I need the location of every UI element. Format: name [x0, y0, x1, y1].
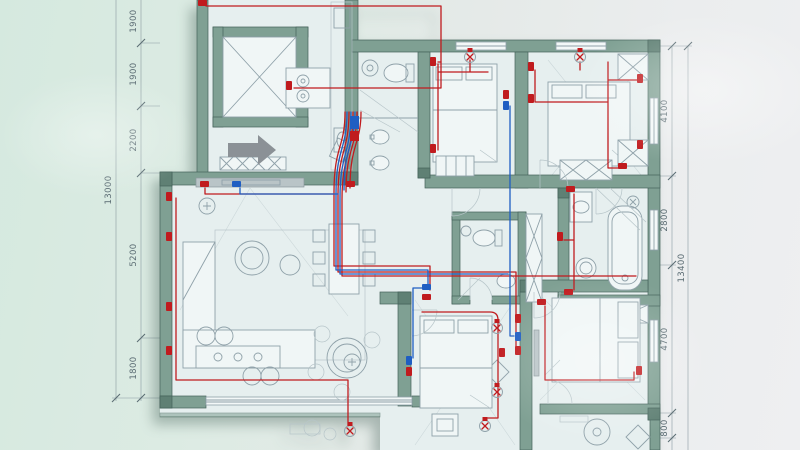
- wall-balcony-slab: [160, 413, 380, 417]
- dim-label-left-4: 1800: [129, 356, 139, 379]
- power-outlet-icon: [200, 181, 209, 187]
- balcony-left: [290, 420, 336, 440]
- dim-label-left-1: 1900: [129, 62, 139, 85]
- window-right-1: [650, 98, 658, 144]
- ceiling-light-icon: [345, 422, 356, 437]
- pier-2: [160, 396, 172, 408]
- entry: [220, 157, 286, 170]
- dim-label-right-1: 2800: [660, 208, 670, 231]
- power-outlet-icon: [166, 232, 172, 241]
- bedroom-top-middle: [433, 64, 497, 176]
- dim-label-left-3: 5200: [129, 243, 139, 266]
- wall-elevator-left: [213, 27, 223, 127]
- distribution-panel: [350, 116, 359, 141]
- pier-1: [160, 172, 172, 186]
- window-living-south: [206, 397, 412, 405]
- bench: [432, 414, 458, 436]
- island: [196, 346, 280, 368]
- power-outlet-icon: [637, 140, 643, 149]
- elevator: [223, 37, 296, 117]
- low-voltage-outlet-icon: [232, 181, 241, 187]
- power-outlet-icon: [430, 57, 436, 66]
- floor-plan: 1900 1900 2200 5200 1800 13000 4100 2800…: [0, 0, 800, 450]
- dim-label-left-overall: 13000: [104, 175, 114, 204]
- toilet: [473, 230, 495, 246]
- wall-living-left: [160, 172, 172, 408]
- low-voltage-outlet-icon: [515, 332, 521, 341]
- bathtub: [608, 206, 642, 290]
- wall-corridor-top: [425, 175, 660, 188]
- power-outlet-icon: [166, 302, 172, 311]
- power-outlet-icon: [166, 346, 172, 355]
- power-outlet-icon: [637, 74, 643, 83]
- dimension-chain-left: 1900 1900 2200 5200 1800 13000: [104, 0, 160, 402]
- dresser: [436, 156, 474, 176]
- power-outlet-icon: [286, 81, 292, 90]
- power-outlet-icon: [422, 294, 431, 300]
- power-outlet-icon: [537, 299, 546, 305]
- power-outlet-icon: [528, 94, 534, 103]
- wall-bedroom-bc-left: [398, 292, 411, 406]
- wall-bedroom-divider-top: [515, 52, 528, 188]
- apartment: [160, 0, 660, 450]
- toilet: [384, 64, 408, 82]
- power-outlet-icon: [346, 181, 355, 187]
- bedroom-bottom-right: [545, 298, 640, 382]
- low-voltage-outlet-icon: [422, 284, 431, 290]
- bed: [420, 316, 492, 408]
- wall-elevator-top: [213, 27, 308, 37]
- pier-5: [648, 408, 660, 420]
- floor-plan-canvas: 1900 1900 2200 5200 1800 13000 4100 2800…: [0, 0, 800, 450]
- bed: [552, 298, 640, 382]
- tv: [534, 330, 539, 376]
- pier-4: [648, 40, 660, 52]
- low-voltage-outlet-icon: [406, 356, 412, 365]
- wall-elevator-bottom: [213, 117, 308, 127]
- power-outlet-icon: [528, 62, 534, 71]
- wall-bath-center-top: [452, 212, 526, 220]
- dim-label-right-overall: 13400: [677, 253, 687, 282]
- power-outlet-icon: [198, 0, 207, 6]
- power-outlet-icon: [566, 186, 575, 192]
- power-outlet-icon: [515, 314, 521, 323]
- dim-label-left-0: 1900: [129, 9, 139, 32]
- wall-bath-top-right: [418, 52, 430, 178]
- power-outlet-icon: [636, 366, 642, 375]
- wall-bottom-divider: [520, 292, 532, 450]
- low-voltage-outlet-icon: [503, 101, 509, 110]
- power-outlet-icon: [430, 144, 436, 153]
- window-right-2: [650, 210, 658, 250]
- window-right-3: [650, 320, 658, 362]
- wall-entry-left: [197, 0, 208, 178]
- power-outlet-icon: [499, 348, 505, 357]
- tv-console: [196, 178, 304, 187]
- power-outlet-icon: [515, 346, 521, 355]
- dim-label-left-2: 2200: [129, 128, 139, 151]
- dim-label-right-0: 4100: [660, 99, 670, 122]
- bed: [433, 64, 497, 162]
- power-outlet-icon: [618, 163, 627, 169]
- dim-label-right-3: 800: [660, 419, 670, 436]
- pier-9: [418, 168, 430, 178]
- dim-label-right-2: 4700: [660, 327, 670, 350]
- pier-7: [398, 292, 411, 304]
- sink: [576, 258, 596, 278]
- window-top-1: [456, 42, 506, 50]
- power-outlet-icon: [503, 90, 509, 99]
- power-outlet-icon: [564, 289, 573, 295]
- wall-bath-center-left: [452, 212, 460, 304]
- power-outlet-icon: [557, 232, 563, 241]
- wall-balcony-right: [540, 404, 660, 414]
- power-outlet-icon: [406, 367, 412, 376]
- power-outlet-icon: [166, 192, 172, 201]
